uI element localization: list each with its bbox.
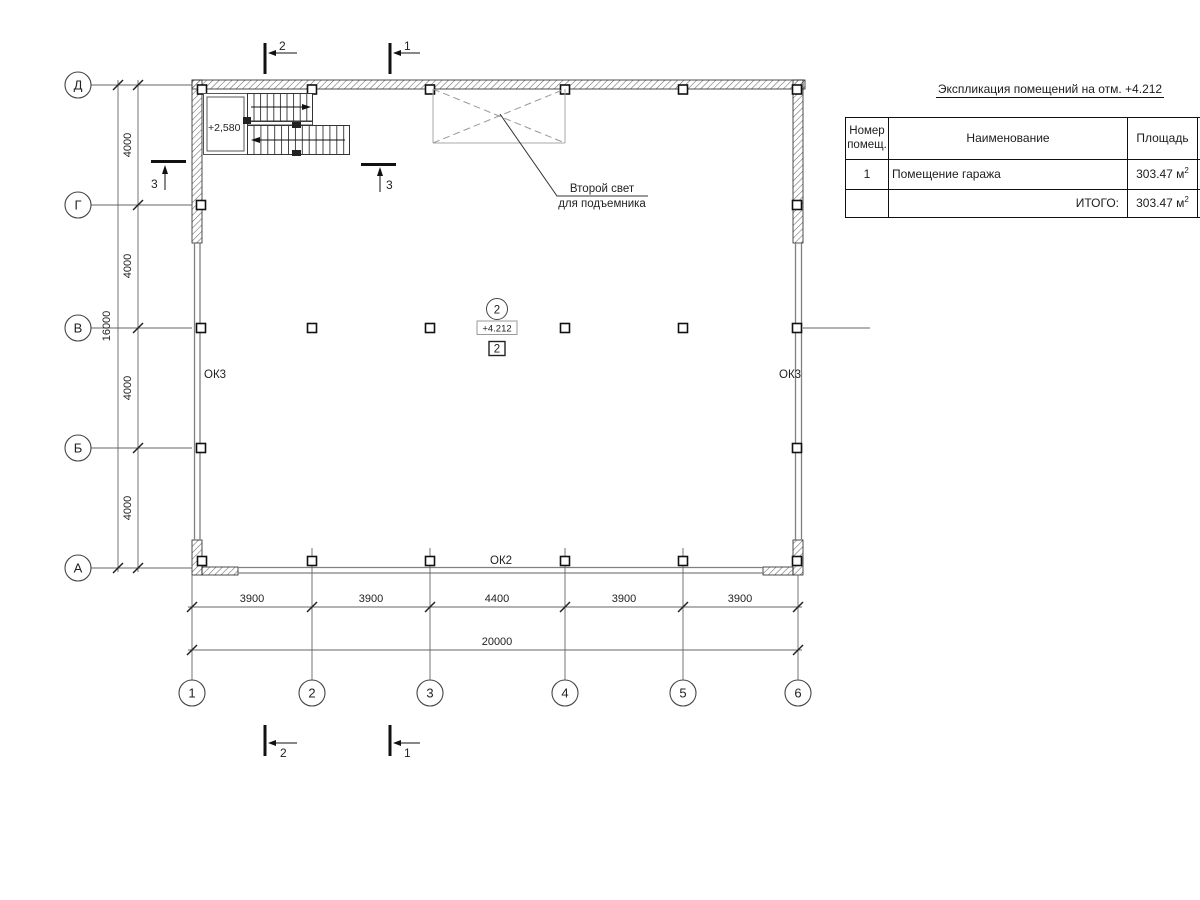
dimension-lines	[118, 80, 802, 650]
wall-top	[192, 80, 805, 89]
header-room-number: Номерпомещ.	[846, 118, 889, 160]
window-tag-left: ОК3	[204, 369, 226, 381]
header-name: Наименование	[889, 118, 1128, 160]
dim-left-3: 4000	[122, 376, 134, 400]
dim-left-1: 4000	[122, 133, 134, 157]
cell-total-empty	[846, 190, 889, 217]
grid-row-a: А	[74, 561, 83, 576]
grid-row-g: Г	[74, 198, 81, 213]
grid-row-d: Д	[74, 78, 83, 93]
dim-left-4: 4000	[122, 496, 134, 520]
dim-bottom-1: 3900	[240, 593, 264, 605]
cell-room-area: 303.47 м2	[1128, 160, 1198, 190]
dim-left-2: 4000	[122, 254, 134, 278]
grid-col-3: 3	[426, 686, 433, 701]
section-label-inner-3: 3	[386, 178, 393, 192]
window-bands	[195, 243, 802, 573]
grid-lines	[91, 85, 870, 680]
floor-plan-sheet: 4000 4000 4000 4000 16000 3900 3900 4400…	[0, 0, 1200, 900]
wall-right-upper	[793, 80, 803, 243]
section-label-top-2: 2	[279, 39, 286, 53]
schedule-title: Экспликация помещений на отм. +4.212	[900, 82, 1200, 96]
section-label-left-3: 3	[151, 177, 158, 191]
grid-col-1: 1	[188, 686, 195, 701]
grid-bubbles	[65, 72, 811, 706]
grid-col-4: 4	[561, 686, 568, 701]
section-label-top-1: 1	[404, 39, 411, 53]
header-area: Площадь	[1128, 118, 1198, 160]
annotation-line1: Второй свет	[570, 183, 635, 195]
dim-bottom-4: 3900	[612, 593, 636, 605]
window-tags: ОК3 ОК3 ОК2	[204, 369, 801, 567]
stair-mid-wall	[248, 122, 313, 126]
cell-room-number: 1	[846, 160, 889, 190]
cell-total-label: ИТОГО:	[889, 190, 1128, 217]
wall-left-upper	[192, 80, 202, 243]
grid-row-v: В	[74, 321, 83, 336]
room-schedule-table: Номерпомещ. Наименование Площадь Кп 1 По…	[845, 117, 1200, 218]
wall-bottom-right-seg	[763, 567, 793, 575]
grid-col-2: 2	[308, 686, 315, 701]
stairwell: +2,580	[204, 94, 350, 157]
dim-bottom-total: 20000	[482, 636, 513, 648]
dim-bottom-5: 3900	[728, 593, 752, 605]
cell-room-name: Помещение гаража	[889, 160, 1128, 190]
second-light-opening: Второй свет для подъемника	[433, 89, 648, 210]
grid-col-5: 5	[679, 686, 686, 701]
section-label-bottom-1: 1	[404, 746, 411, 760]
dim-bottom-3: 4400	[485, 593, 509, 605]
stairs-level-label: +2,580	[208, 122, 241, 134]
grid-col-6: 6	[794, 686, 801, 701]
wall-bottom-left-seg	[202, 567, 238, 575]
floor-level-label: +4.212	[482, 324, 511, 335]
cell-total-area: 303.47 м2	[1128, 190, 1198, 217]
annotation-line2: для подъемника	[558, 198, 646, 210]
dim-bottom-2: 3900	[359, 593, 383, 605]
section-label-bottom-2: 2	[280, 746, 287, 760]
room-number-square: 2	[494, 344, 500, 356]
window-tag-right: ОК3	[779, 369, 801, 381]
dim-left-total: 16000	[101, 311, 113, 342]
grid-row-b: Б	[74, 441, 83, 456]
room-markers: 2 +4.212 2	[477, 299, 517, 356]
window-tag-bottom: ОК2	[490, 555, 512, 567]
room-number-circle: 2	[494, 305, 500, 317]
